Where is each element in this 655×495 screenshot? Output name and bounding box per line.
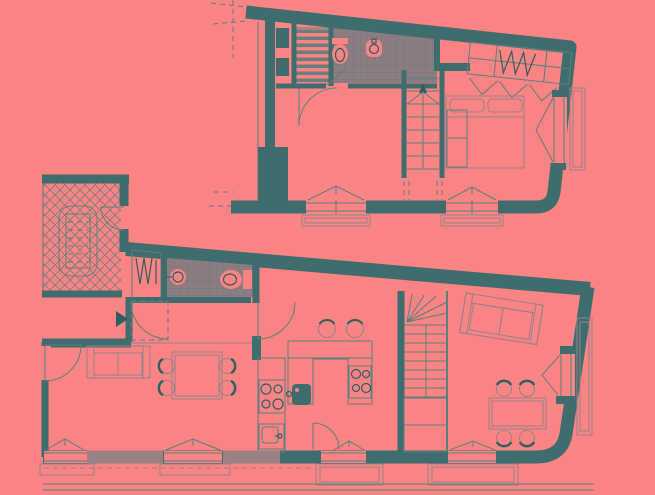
cooktop-left bbox=[259, 380, 285, 413]
lower-toilet bbox=[220, 270, 252, 289]
under-stair-storage-1 bbox=[404, 398, 447, 425]
double-bed bbox=[446, 96, 524, 168]
bar-stool-2 bbox=[347, 320, 364, 338]
entry-door-swing bbox=[131, 302, 168, 339]
communal-stairwell bbox=[42, 179, 129, 297]
island-dark-sink bbox=[287, 384, 312, 405]
winder-staircase bbox=[401, 291, 447, 453]
terrace-door-swing bbox=[40, 345, 81, 381]
kitchen-exterior-door-swing bbox=[313, 423, 339, 449]
toilet-fixture bbox=[332, 38, 348, 64]
sofa-2 bbox=[460, 293, 543, 345]
cooktop-island bbox=[349, 366, 371, 398]
sofa bbox=[87, 346, 150, 378]
winder-fan-treads bbox=[407, 294, 447, 322]
window-w4 bbox=[160, 439, 230, 475]
bar-stool-1 bbox=[319, 320, 336, 338]
upper-window-1 bbox=[302, 186, 370, 226]
upper-side-window bbox=[536, 88, 585, 170]
straight-treads bbox=[404, 325, 447, 397]
bedroom-door-swing bbox=[299, 88, 337, 126]
floor-plan-drawing bbox=[0, 0, 655, 495]
duct-block-b bbox=[276, 58, 289, 76]
upper-window-2 bbox=[441, 187, 503, 226]
upper-floor-plan bbox=[209, 0, 585, 226]
right-and-bottom-wall bbox=[43, 287, 588, 457]
shelved-closet bbox=[296, 28, 329, 84]
wall-chunk bbox=[258, 147, 288, 207]
apartment-entry bbox=[116, 301, 168, 340]
duct-block-a bbox=[276, 28, 289, 48]
bathroom-door-swing bbox=[258, 302, 295, 339]
coat-hangers-zigzag bbox=[136, 258, 152, 284]
washbasin-fixture bbox=[366, 39, 382, 57]
upper-staircase bbox=[404, 70, 442, 200]
dining-table-2 bbox=[489, 381, 546, 446]
stair-side-cabinet bbox=[447, 110, 467, 167]
kitchen-sink bbox=[259, 424, 284, 449]
reference-dashes bbox=[209, 0, 246, 206]
floor-plan-page bbox=[0, 0, 655, 495]
dining-table-1 bbox=[159, 352, 235, 399]
stair-dashed-continuation bbox=[404, 181, 442, 200]
under-stair-storage-2 bbox=[404, 425, 447, 452]
kitchen bbox=[258, 320, 372, 452]
